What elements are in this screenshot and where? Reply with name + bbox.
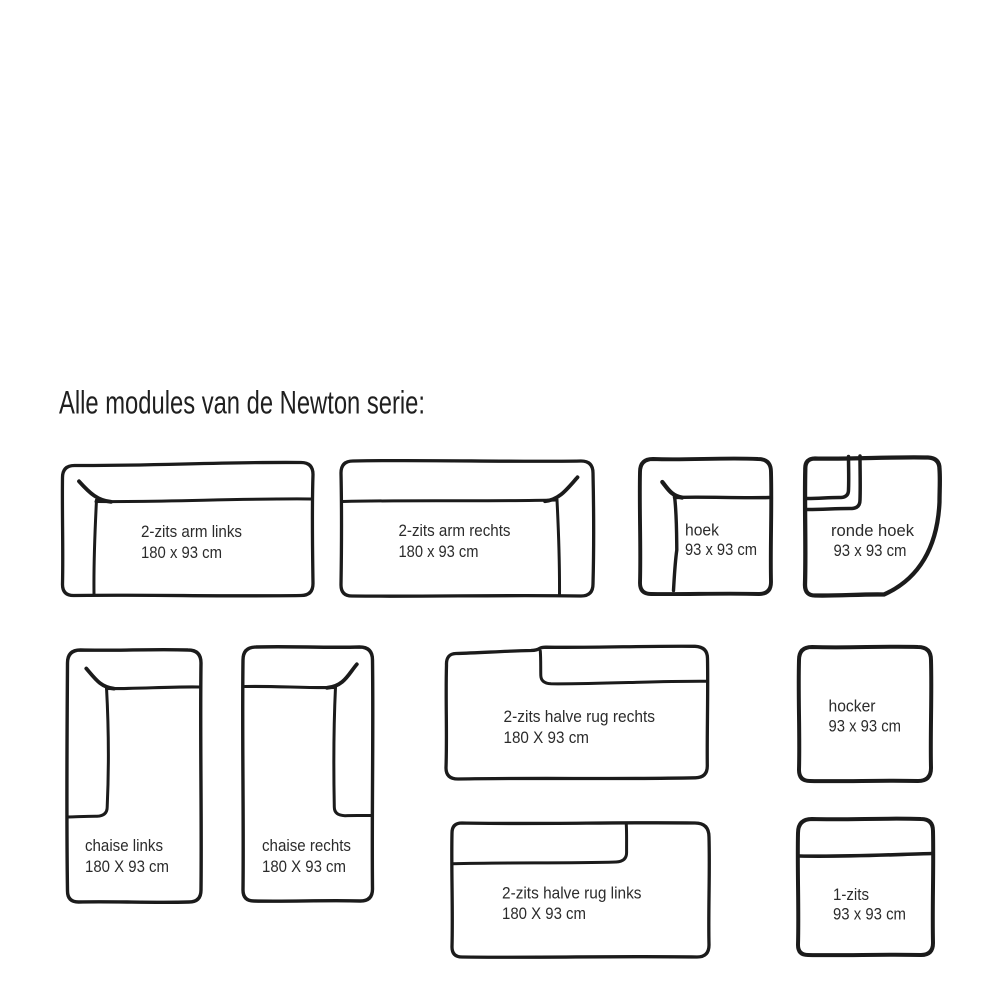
svg-text:93 x 93 cm: 93 x 93 cm <box>685 540 757 559</box>
svg-text:2-zits halve rug links: 2-zits halve rug links <box>502 884 642 903</box>
svg-text:93 x 93 cm: 93 x 93 cm <box>829 717 902 736</box>
svg-text:2-zits arm rechts: 2-zits arm rechts <box>399 521 511 540</box>
svg-text:hocker: hocker <box>829 697 876 716</box>
svg-text:180 X 93 cm: 180 X 93 cm <box>85 857 169 876</box>
svg-text:ronde hoek: ronde hoek <box>831 521 914 540</box>
svg-text:93 x 93 cm: 93 x 93 cm <box>834 541 907 560</box>
svg-text:180 X 93 cm: 180 X 93 cm <box>504 728 590 747</box>
svg-text:chaise links: chaise links <box>85 836 163 855</box>
svg-text:180 x 93 cm: 180 x 93 cm <box>399 542 479 561</box>
svg-text:93 x 93 cm: 93 x 93 cm <box>833 905 906 924</box>
svg-text:180 X 93 cm: 180 X 93 cm <box>262 857 346 876</box>
svg-text:180 X 93 cm: 180 X 93 cm <box>502 904 586 923</box>
svg-text:2-zits halve rug rechts: 2-zits halve rug rechts <box>504 707 656 726</box>
svg-text:chaise rechts: chaise rechts <box>262 836 351 855</box>
svg-text:180 x 93 cm: 180 x 93 cm <box>141 543 222 562</box>
svg-text:hoek: hoek <box>685 521 719 540</box>
svg-text:Alle modules van de Newton ser: Alle modules van de Newton serie: <box>59 385 425 421</box>
svg-text:1-zits: 1-zits <box>833 885 869 904</box>
svg-text:2-zits arm links: 2-zits arm links <box>141 522 242 541</box>
